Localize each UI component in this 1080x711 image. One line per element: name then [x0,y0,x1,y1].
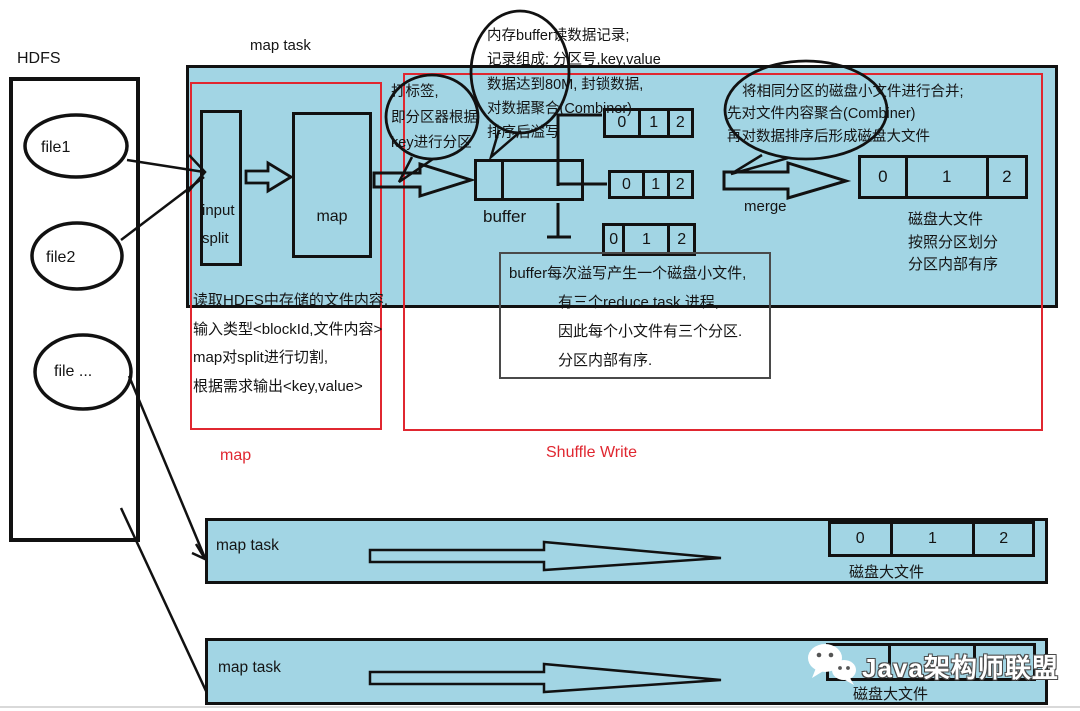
big-file-note-line3: 分区内部有序 [908,254,998,277]
bigfile-cell-1: 1 [908,158,989,196]
hdfs-box [9,77,140,542]
spill-note-line4: 分区内部有序. [501,346,769,375]
spill2-cell-0: 0 [611,173,645,196]
read-note-line1: 读取HDFS中存储的文件内容, [193,287,388,316]
row1-file-box: 0 1 2 [828,521,1035,557]
spill3-cell-0: 0 [605,226,625,253]
watermark-text: Java架构师联盟 [862,648,1059,685]
row2-label: map task [218,658,281,677]
spill-note-box: buffer每次溢写产生一个磁盘小文件, 有三个reduce task 进程, … [499,252,771,379]
big-file-box: 0 1 2 [858,155,1028,199]
buffer-divider [501,162,504,198]
row1-cell-1: 1 [893,524,976,554]
page-bottom-rule [0,706,1080,708]
memory-line1: 内存buffer读数据记录; [487,24,661,48]
bigfile-cell-2: 2 [989,158,1025,196]
map-box [292,112,372,258]
spill3-cell-2: 2 [670,226,693,253]
hdfs-title: HDFS [17,49,61,69]
read-note-line2: 输入类型<blockId,文件内容> [193,316,388,345]
merge-line3: 再对数据排序后形成磁盘大文件 [727,126,964,148]
buffer-box [474,159,584,201]
memory-bubble-text: 内存buffer读数据记录; 记录组成: 分区号,key,value 数据达到8… [487,24,661,145]
merge-arrow-label: merge [744,198,787,217]
bigfile-cell-0: 0 [861,158,908,196]
row1-cell-2: 2 [975,524,1032,554]
shuffle-write-section-label: Shuffle Write [546,443,637,463]
wechat-icon [806,642,858,686]
spill2-cell-1: 1 [645,173,670,196]
spill-note-line2: 有三个reduce task 进程, [501,288,769,317]
map-section-label: map [220,446,251,466]
spill2-cell-2: 2 [670,173,692,196]
merge-line2: 先对文件内容聚合(Combiner) [727,103,964,125]
row1-cell-0: 0 [831,524,893,554]
merge-line1: 将相同分区的磁盘小文件进行合并; [727,81,964,103]
read-note: 读取HDFS中存储的文件内容, 输入类型<blockId,文件内容> map对s… [193,287,388,401]
tag-line1: 打标签, [391,80,478,106]
row1-arrowhead [192,544,205,559]
file-more-label: file ... [54,362,92,382]
file2-label: file2 [46,248,75,268]
input-split-line1: input [202,197,235,225]
read-note-line4: 根据需求输出<key,value> [193,373,388,402]
watermark: Java架构师联盟 [806,640,1066,690]
row1-label: map task [216,536,279,555]
input-split-line2: split [202,225,235,253]
tag-line3: key进行分区 [391,131,478,157]
tag-line2: 即分区器根据 [391,106,478,132]
tag-bubble-text: 打标签, 即分区器根据 key进行分区 [391,80,478,157]
row1-caption: 磁盘大文件 [849,564,924,583]
spill-note-line1: buffer每次溢写产生一个磁盘小文件, [501,259,769,288]
memory-line2: 记录组成: 分区号,key,value [487,48,661,72]
hdfs-shuffle-diagram: HDFS map task file1 file2 file ... input… [0,0,1080,711]
read-note-line3: map对split进行切割, [193,344,388,373]
map-task-title: map task [250,37,311,56]
memory-line5: 排序后溢写 [487,121,661,145]
file1-label: file1 [41,138,70,158]
memory-line4: 对数据聚合(Combiner) [487,97,661,121]
big-file-note-line1: 磁盘大文件 [908,209,998,232]
map-box-label: map [292,207,372,227]
spill-note-line3: 因此每个小文件有三个分区. [501,317,769,346]
big-file-note: 磁盘大文件 按照分区划分 分区内部有序 [908,209,998,277]
spill-file-box-2: 0 1 2 [608,170,694,199]
merge-bubble-text: 将相同分区的磁盘小文件进行合并; 先对文件内容聚合(Combiner) 再对数据… [727,81,964,148]
memory-line3: 数据达到80M, 封锁数据, [487,73,661,97]
buffer-label: buffer [483,206,526,227]
big-file-note-line2: 按照分区划分 [908,232,998,255]
spill1-cell-2: 2 [670,111,691,135]
spill3-cell-1: 1 [625,226,670,253]
input-split-label: input split [202,197,235,253]
